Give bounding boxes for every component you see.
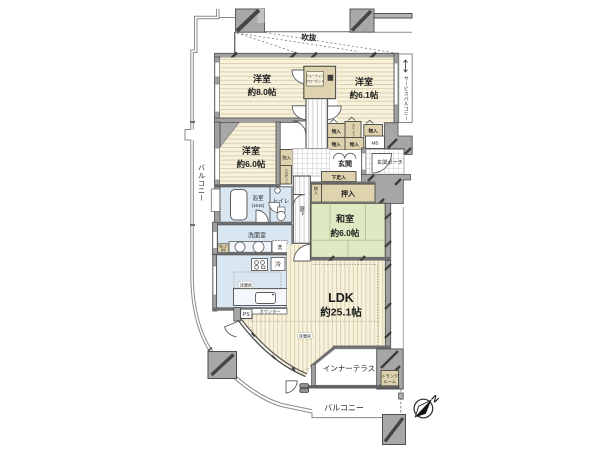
svg-text:洗: 洗 xyxy=(277,244,282,251)
svg-text:約6.0帖: 約6.0帖 xyxy=(237,159,266,169)
svg-text:玄関ポーチ: 玄関ポーチ xyxy=(377,158,403,166)
svg-text:床暖房: 床暖房 xyxy=(240,282,252,288)
svg-text:吹抜: 吹抜 xyxy=(302,32,317,42)
svg-text:約25.1帖: 約25.1帖 xyxy=(320,306,362,319)
svg-text:洗面室: 洗面室 xyxy=(248,232,266,240)
svg-text:約6.0帖: 約6.0帖 xyxy=(331,228,360,238)
svg-text:約6.1帖: 約6.1帖 xyxy=(350,90,379,100)
svg-text:玄関: 玄関 xyxy=(338,159,352,168)
svg-text:トイレ: トイレ xyxy=(273,199,290,205)
svg-text:冷: 冷 xyxy=(275,261,281,269)
svg-text:約8.0帖: 約8.0帖 xyxy=(248,87,277,97)
svg-text:(1616): (1616) xyxy=(252,203,265,208)
svg-text:下足入: 下足入 xyxy=(331,174,346,181)
svg-text:クロゼット: クロゼット xyxy=(284,167,288,184)
svg-text:ルーム: ルーム xyxy=(383,379,395,384)
svg-text:洋室: 洋室 xyxy=(355,76,373,87)
svg-text:LDK: LDK xyxy=(328,291,354,305)
svg-text:廊下: 廊下 xyxy=(299,205,305,217)
svg-text:床暖房: 床暖房 xyxy=(299,333,311,339)
svg-text:物入: 物入 xyxy=(314,185,319,194)
svg-text:物入: 物入 xyxy=(368,128,378,135)
svg-text:物入: 物入 xyxy=(282,155,291,162)
svg-text:物入: 物入 xyxy=(350,141,360,148)
svg-text:カウンター: カウンター xyxy=(260,308,281,315)
svg-text:物入: 物入 xyxy=(332,141,342,148)
svg-text:クローゼット: クローゼット xyxy=(306,78,324,83)
svg-text:物入: 物入 xyxy=(332,128,342,135)
svg-text:バルコニー: バルコニー xyxy=(198,164,206,202)
svg-text:サービスバルコニー: サービスバルコニー xyxy=(403,76,409,121)
svg-text:浴室: 浴室 xyxy=(252,194,264,202)
svg-text:洋室: 洋室 xyxy=(242,145,260,156)
svg-text:押入: 押入 xyxy=(341,189,355,198)
svg-text:置場: 置場 xyxy=(221,248,227,252)
svg-text:ウォークイン: ウォークイン xyxy=(306,73,324,78)
svg-text:洋室: 洋室 xyxy=(253,73,271,84)
svg-text:PS: PS xyxy=(243,312,250,318)
svg-text:バルコニー: バルコニー xyxy=(324,404,364,413)
svg-text:インナーテラス: インナーテラス xyxy=(323,364,375,373)
svg-text:和室: 和室 xyxy=(335,213,354,224)
svg-text:MB: MB xyxy=(372,141,379,146)
